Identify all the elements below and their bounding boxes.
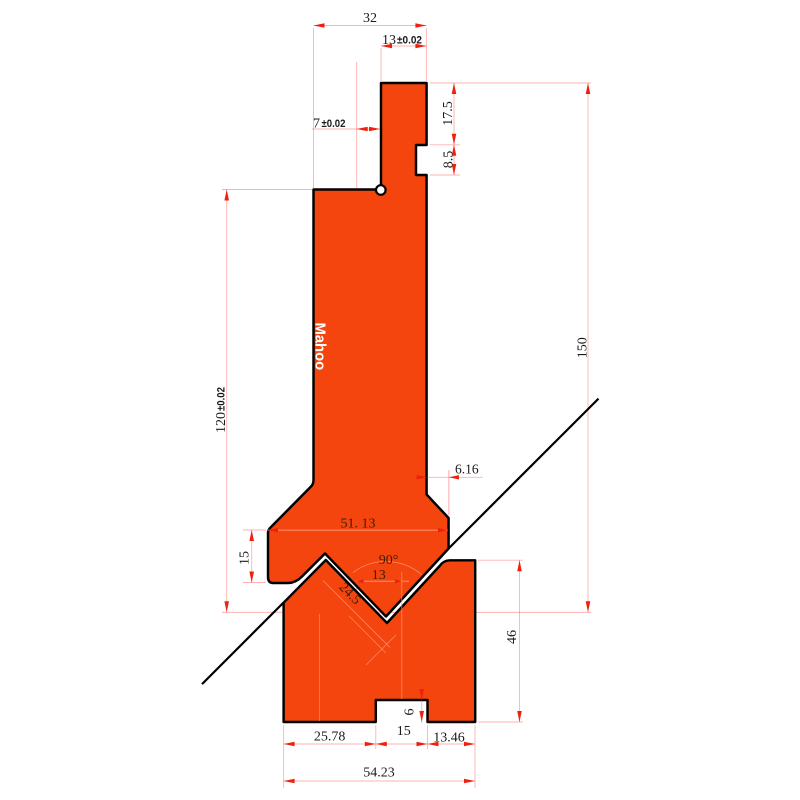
svg-text:15: 15 bbox=[238, 551, 253, 565]
svg-text:32: 32 bbox=[363, 11, 377, 26]
svg-text:120±0.02: 120±0.02 bbox=[214, 387, 229, 433]
svg-text:54.23: 54.23 bbox=[363, 766, 395, 781]
svg-text:17.5: 17.5 bbox=[441, 101, 456, 126]
svg-text:150: 150 bbox=[576, 337, 591, 358]
svg-text:6: 6 bbox=[403, 709, 418, 716]
svg-text:13: 13 bbox=[372, 568, 386, 583]
svg-text:7±0.02: 7±0.02 bbox=[313, 117, 346, 132]
svg-text:13.46: 13.46 bbox=[433, 731, 465, 746]
svg-text:Mahoo: Mahoo bbox=[312, 323, 328, 371]
svg-text:6.16: 6.16 bbox=[455, 462, 479, 477]
svg-text:51. 13: 51. 13 bbox=[341, 517, 376, 532]
svg-text:13±0.02: 13±0.02 bbox=[382, 33, 422, 48]
svg-text:8.5: 8.5 bbox=[442, 151, 457, 169]
svg-text:25.78: 25.78 bbox=[314, 730, 346, 745]
svg-text:15: 15 bbox=[397, 724, 411, 739]
svg-text:46: 46 bbox=[505, 630, 520, 644]
svg-text:90°: 90° bbox=[379, 553, 399, 568]
